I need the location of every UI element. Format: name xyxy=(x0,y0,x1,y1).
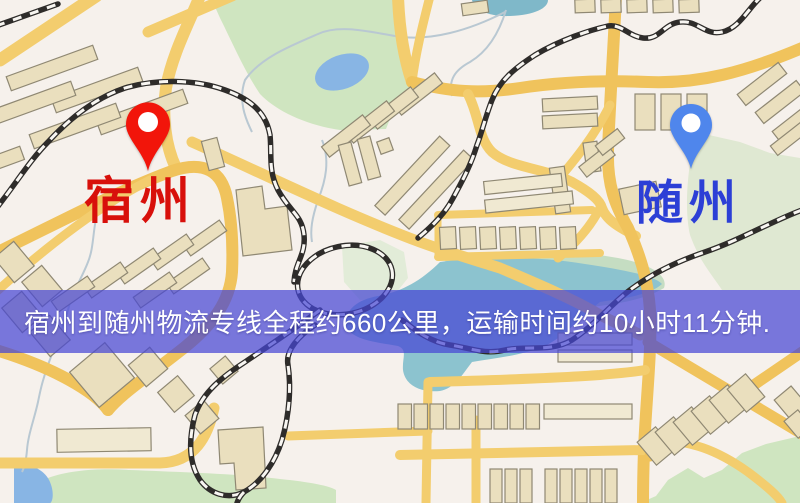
destination-pin-hole xyxy=(682,114,701,133)
destination-city-label: 随州 xyxy=(636,180,742,227)
map-background xyxy=(0,0,800,503)
origin-pin-icon[interactable] xyxy=(124,95,172,173)
destination-pin-icon[interactable] xyxy=(668,97,714,171)
map-viewport: 宿州 随州 宿州到随州物流专线全程约660公里，运输时间约10小时11分钟. xyxy=(0,0,800,503)
origin-pin-hole xyxy=(138,112,158,132)
route-info-banner: 宿州到随州物流专线全程约660公里，运输时间约10小时11分钟. xyxy=(0,290,800,353)
origin-city-label: 宿州 xyxy=(84,176,196,226)
route-info-text: 宿州到随州物流专线全程约660公里，运输时间约10小时11分钟. xyxy=(0,303,771,340)
